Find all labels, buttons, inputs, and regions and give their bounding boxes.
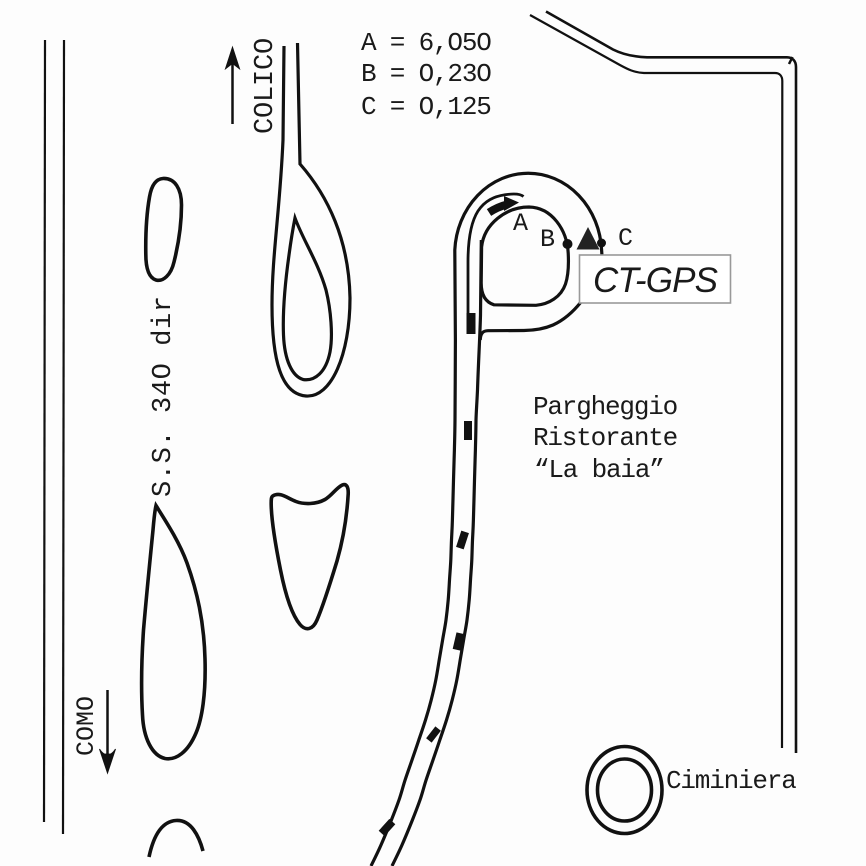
svg-text:C: C [618, 224, 632, 253]
svg-text:B: B [540, 225, 555, 254]
svg-text:C = O,125: C = O,125 [361, 92, 491, 122]
svg-text:B = O,23O: B = O,23O [361, 59, 491, 89]
svg-text:A: A [513, 209, 528, 238]
svg-text:Ristorante: Ristorante [533, 423, 677, 453]
svg-text:CT-GPS: CT-GPS [593, 261, 718, 300]
svg-text:Pargheggio: Pargheggio [533, 392, 677, 422]
svg-text:A = 6,O5O: A = 6,O5O [361, 28, 491, 58]
svg-text:“La baia”: “La baia” [534, 455, 664, 485]
svg-text:S.S. 34O dir: S.S. 34O dir [149, 295, 179, 497]
svg-text:Ciminiera: Ciminiera [666, 766, 796, 796]
svg-text:COLICO: COLICO [251, 38, 281, 134]
svg-text:COMO: COMO [72, 696, 101, 756]
